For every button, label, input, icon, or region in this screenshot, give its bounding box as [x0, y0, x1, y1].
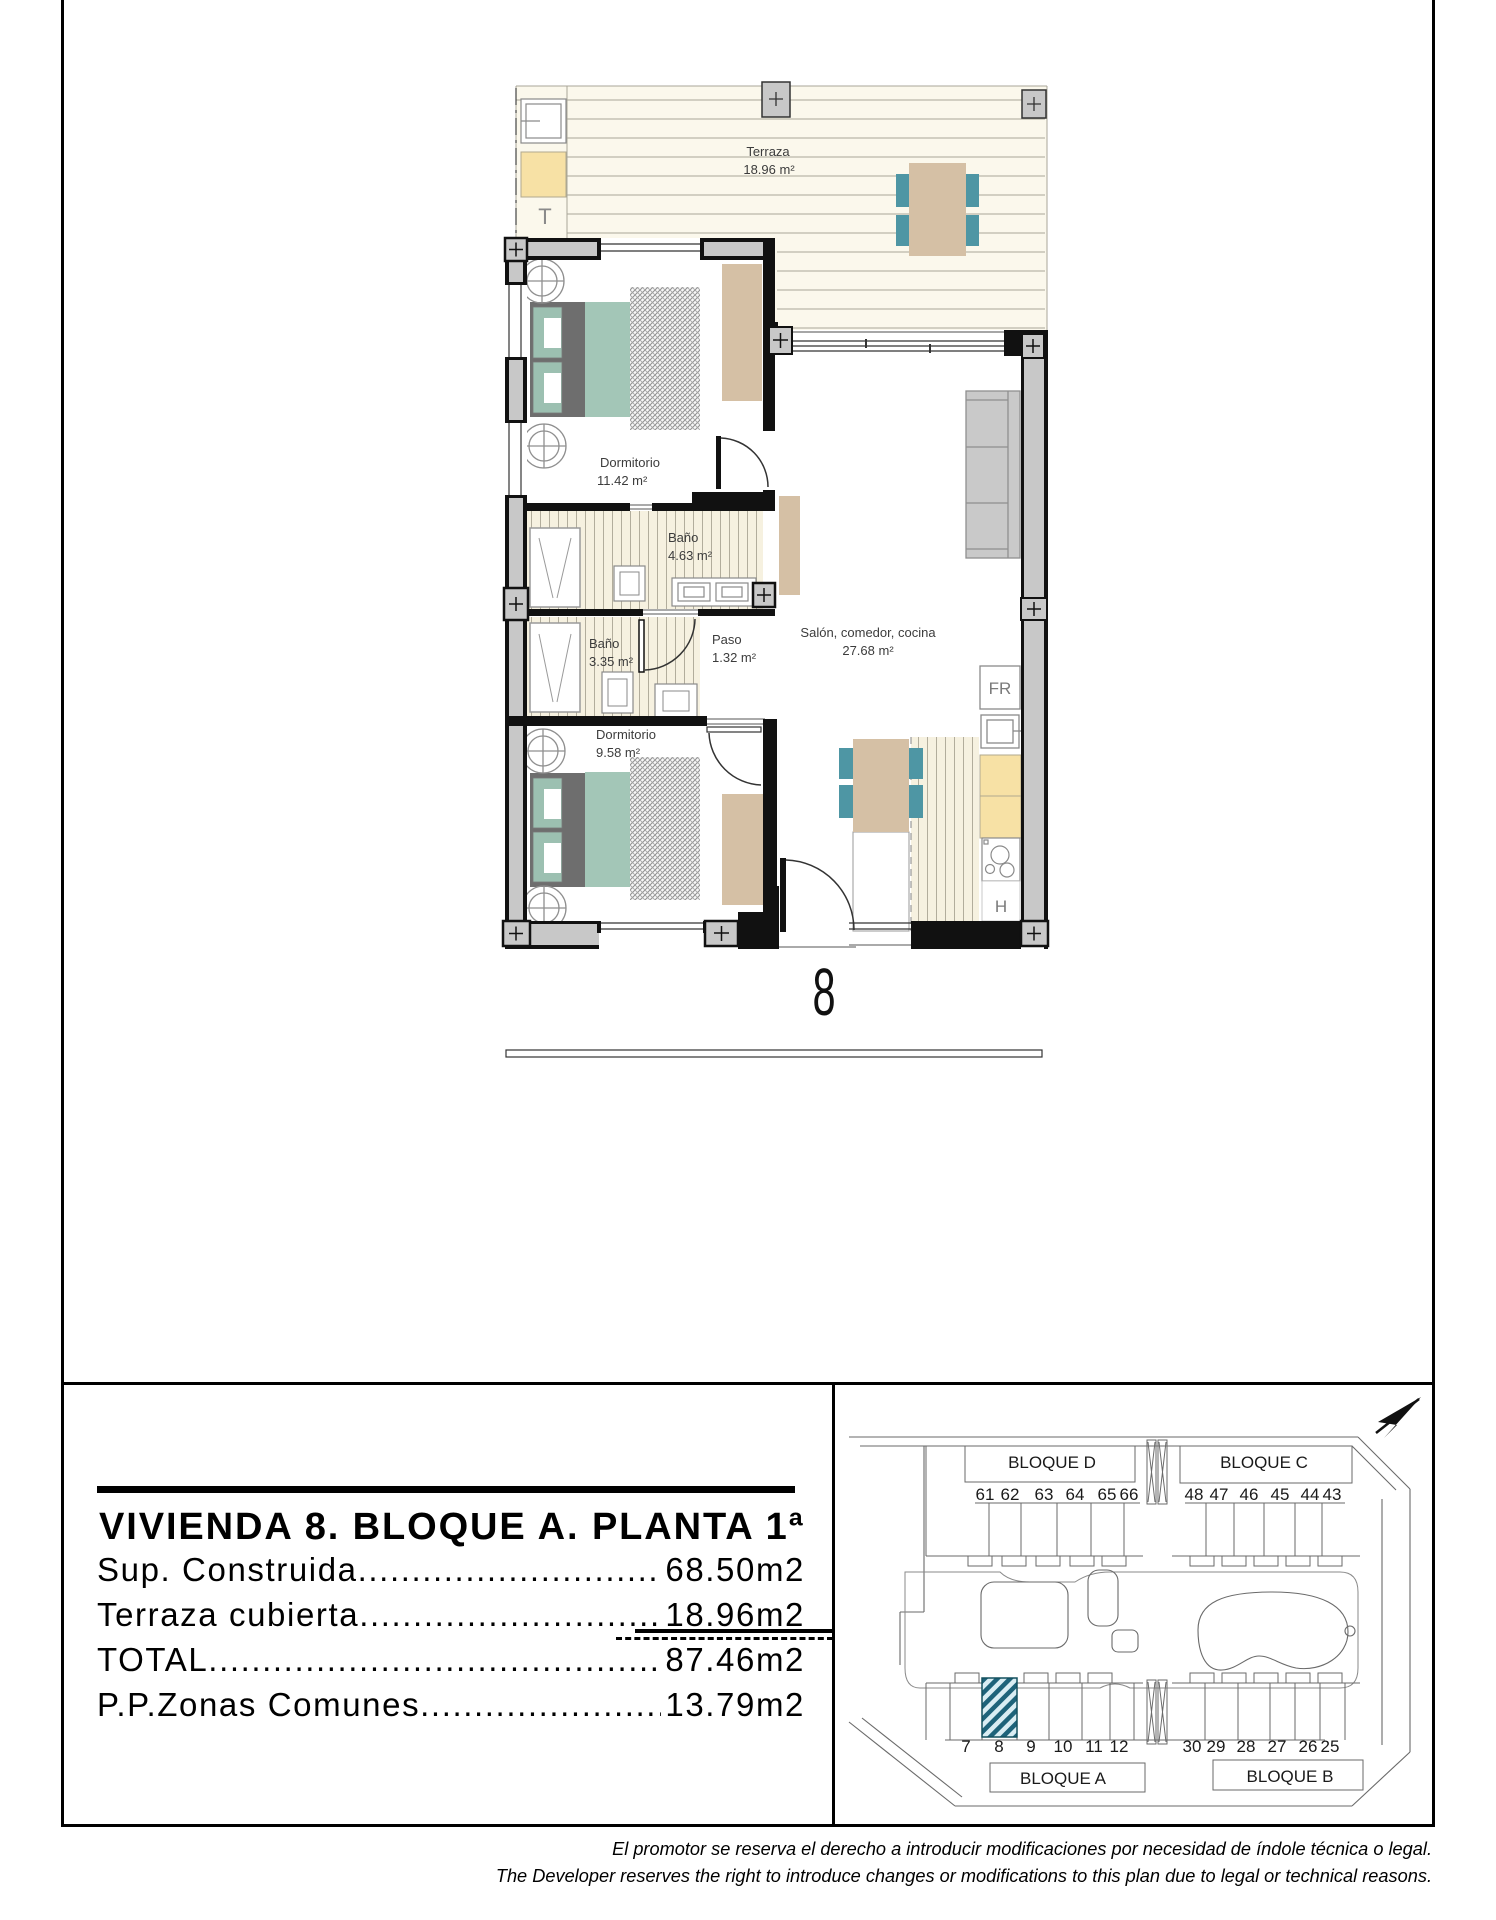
svg-text:47: 47: [1210, 1485, 1229, 1504]
svg-text:BLOQUE C: BLOQUE C: [1220, 1453, 1308, 1472]
svg-text:BLOQUE D: BLOQUE D: [1008, 1453, 1096, 1472]
svg-text:8: 8: [812, 955, 835, 1030]
svg-text:25: 25: [1321, 1737, 1340, 1756]
svg-text:29: 29: [1207, 1737, 1226, 1756]
svg-text:T: T: [538, 204, 551, 229]
svg-text:12: 12: [1110, 1737, 1129, 1756]
svg-text:44: 44: [1301, 1485, 1320, 1504]
svg-text:26: 26: [1299, 1737, 1318, 1756]
svg-text:BLOQUE A: BLOQUE A: [1020, 1769, 1107, 1788]
svg-text:Baño: Baño: [668, 530, 698, 545]
svg-text:11.42 m²: 11.42 m²: [597, 473, 648, 488]
svg-text:45: 45: [1271, 1485, 1290, 1504]
svg-text:4.63 m²: 4.63 m²: [668, 548, 713, 563]
svg-text:9: 9: [1026, 1737, 1035, 1756]
svg-text:Dormitorio: Dormitorio: [596, 727, 656, 742]
svg-text:8: 8: [994, 1737, 1003, 1756]
svg-text:BLOQUE B: BLOQUE B: [1247, 1767, 1334, 1786]
svg-text:27: 27: [1268, 1737, 1287, 1756]
svg-text:61: 61: [976, 1485, 995, 1504]
svg-text:7: 7: [961, 1737, 970, 1756]
svg-text:Dormitorio: Dormitorio: [600, 455, 660, 470]
svg-text:H: H: [995, 897, 1007, 916]
svg-text:62: 62: [1001, 1485, 1020, 1504]
svg-text:11: 11: [1085, 1737, 1103, 1756]
svg-text:Baño: Baño: [589, 636, 619, 651]
svg-text:48: 48: [1185, 1485, 1204, 1504]
svg-text:28: 28: [1237, 1737, 1256, 1756]
svg-text:10: 10: [1054, 1737, 1073, 1756]
svg-text:Salón, comedor, cocina: Salón, comedor, cocina: [800, 625, 936, 640]
svg-text:27.68 m²: 27.68 m²: [842, 643, 894, 658]
svg-text:Terraza: Terraza: [746, 144, 790, 159]
svg-text:66: 66: [1120, 1485, 1139, 1504]
svg-text:46: 46: [1240, 1485, 1259, 1504]
svg-text:64: 64: [1066, 1485, 1085, 1504]
svg-text:3.35 m²: 3.35 m²: [589, 654, 634, 669]
svg-text:43: 43: [1323, 1485, 1342, 1504]
svg-text:65: 65: [1098, 1485, 1117, 1504]
svg-text:30: 30: [1183, 1737, 1202, 1756]
svg-text:1.32 m²: 1.32 m²: [712, 650, 757, 665]
svg-text:18.96 m²: 18.96 m²: [743, 162, 795, 177]
svg-text:FR: FR: [989, 679, 1012, 698]
svg-text:63: 63: [1035, 1485, 1054, 1504]
svg-text:9.58 m²: 9.58 m²: [596, 745, 641, 760]
svg-text:Paso: Paso: [712, 632, 742, 647]
